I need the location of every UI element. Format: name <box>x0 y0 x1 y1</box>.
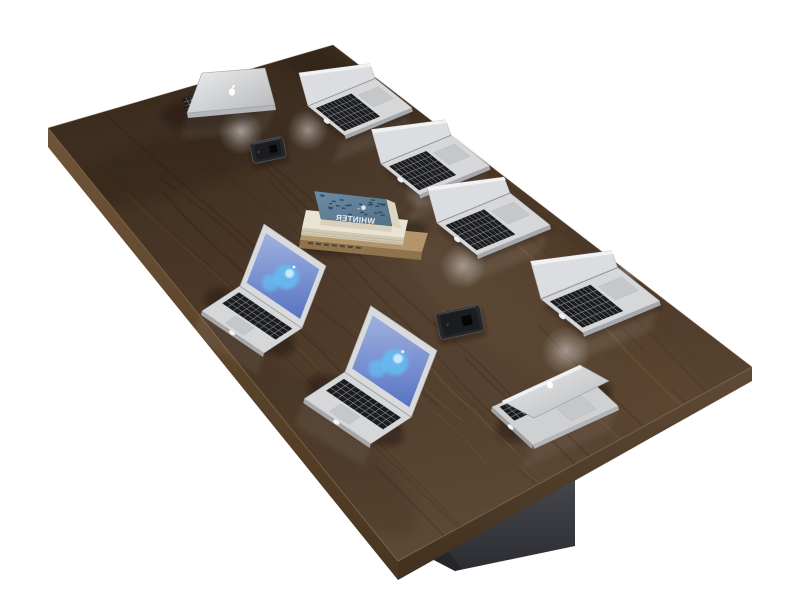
render-canvas: WHINTER ..... <box>0 0 800 600</box>
table-top <box>38 11 800 600</box>
scene-svg: WHINTER ..... <box>0 0 800 600</box>
